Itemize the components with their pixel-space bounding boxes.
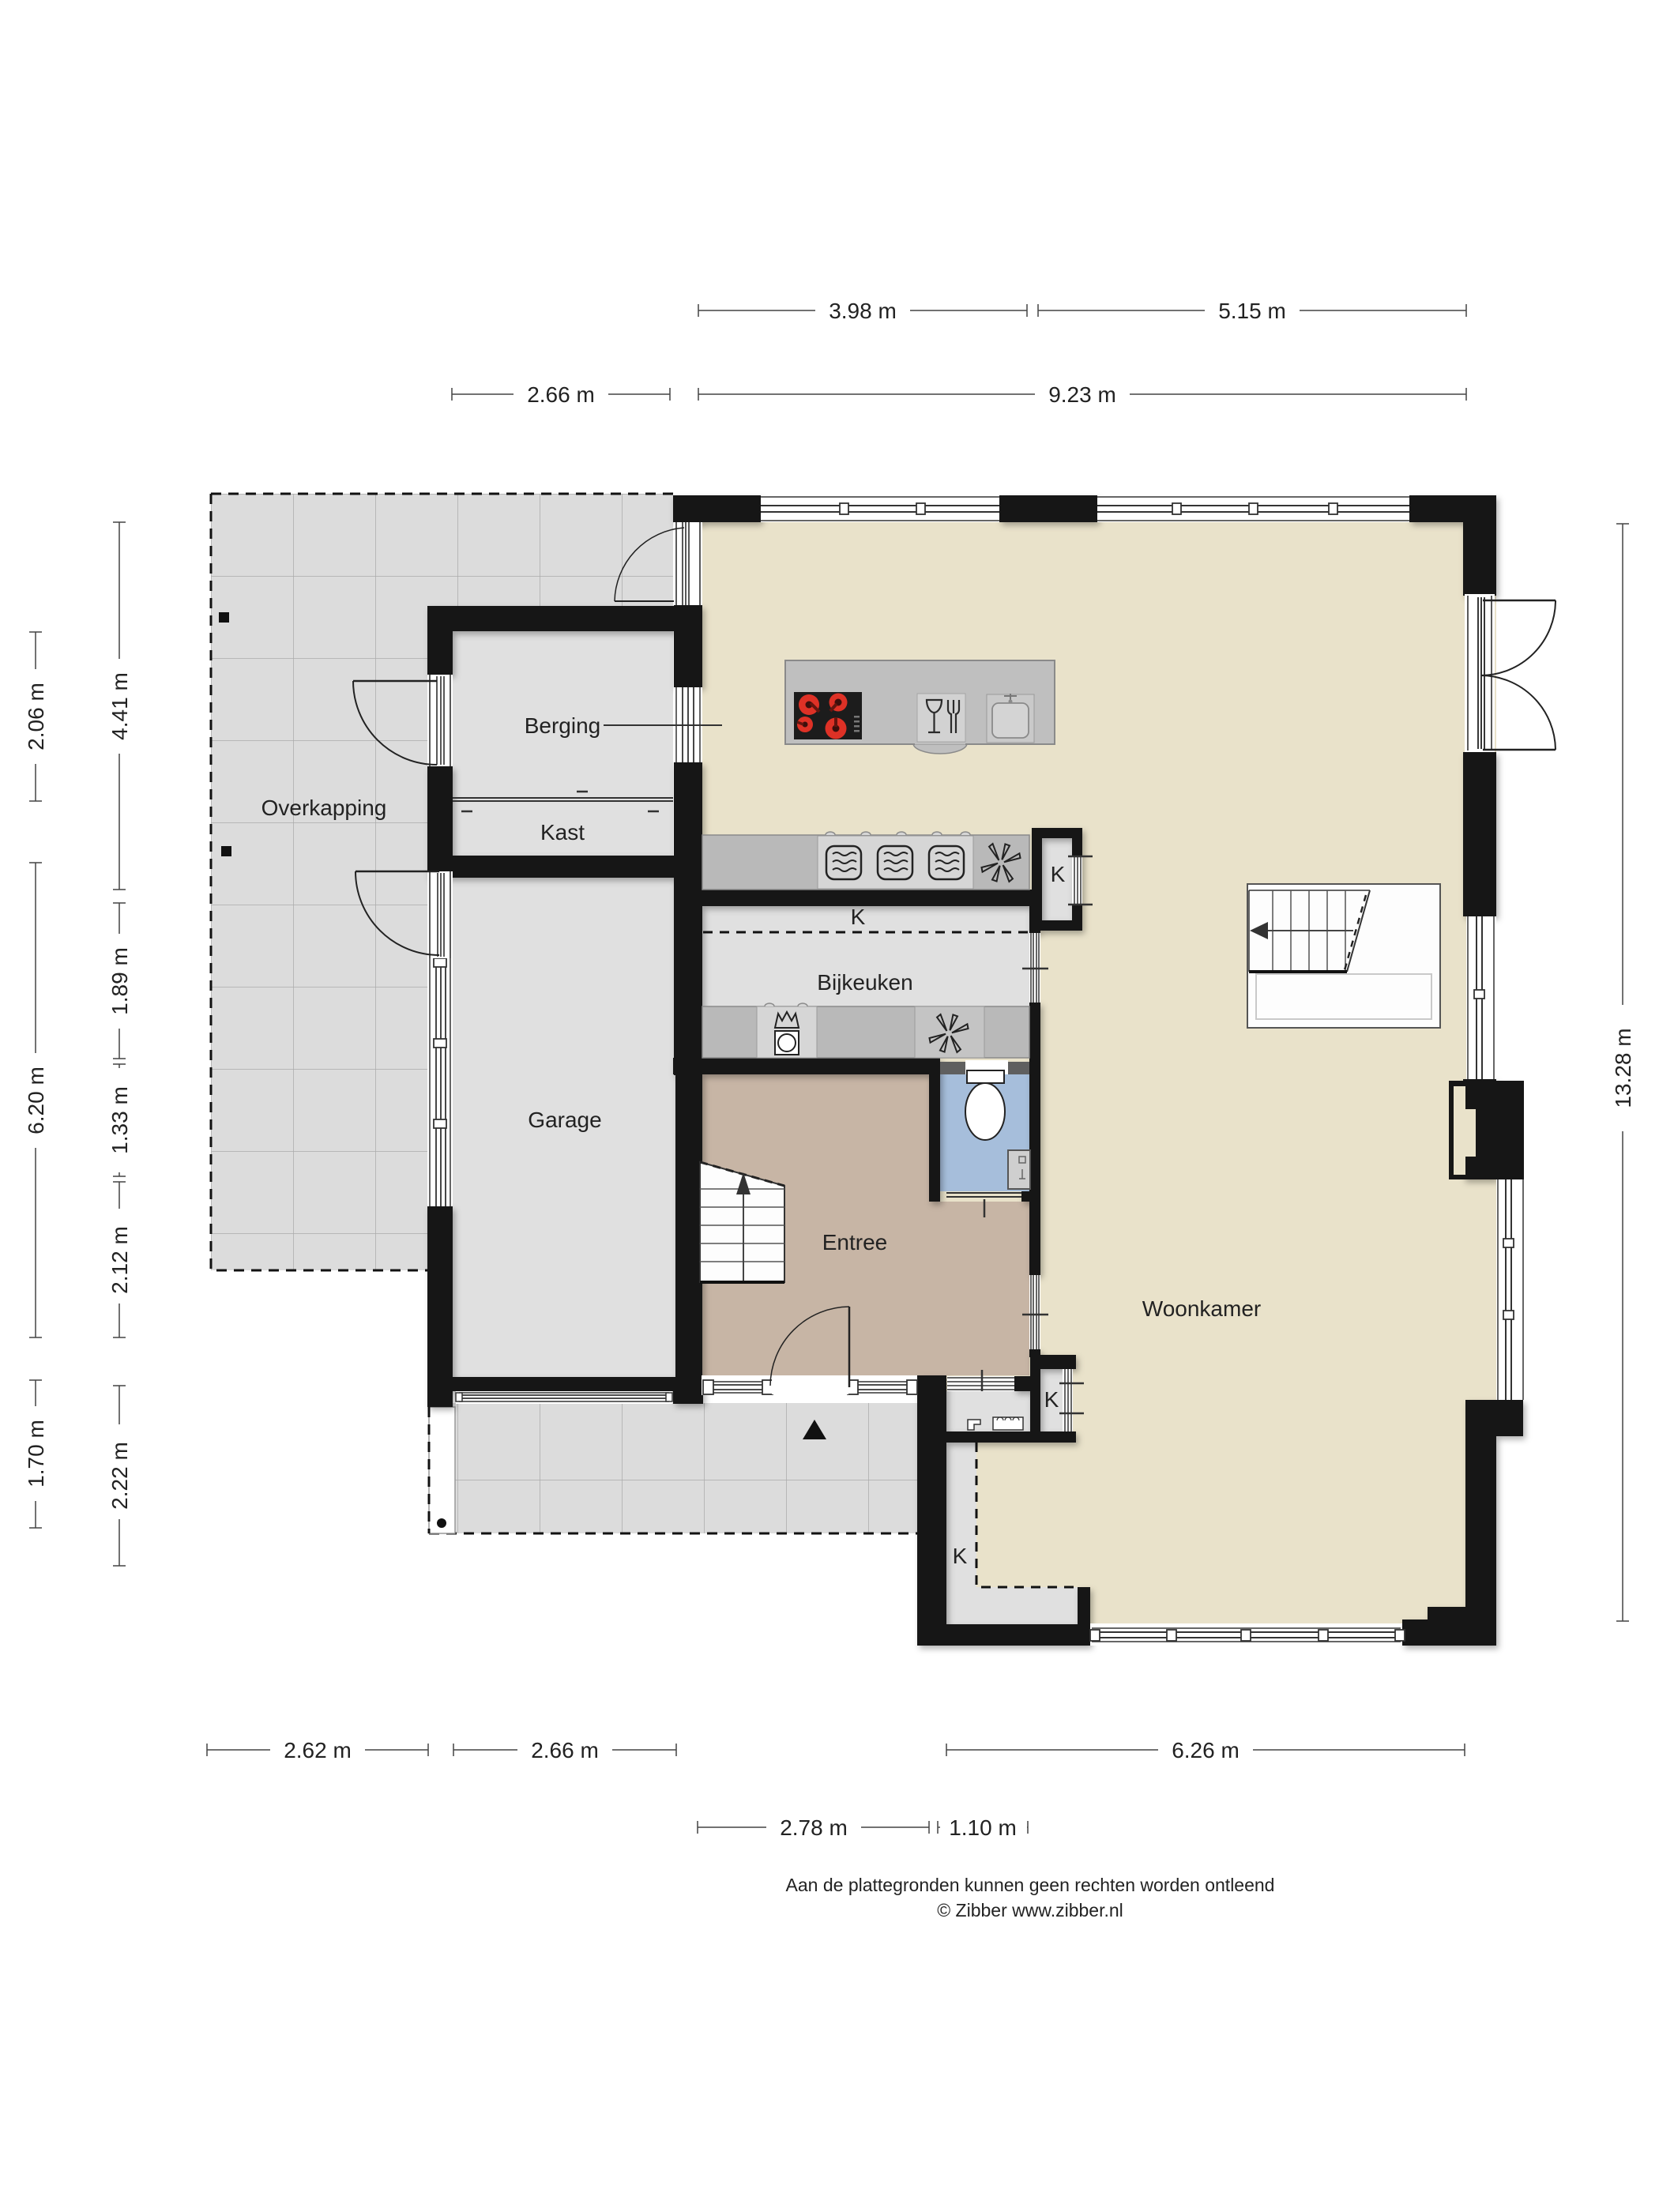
svg-text:9.23 m: 9.23 m bbox=[1048, 382, 1116, 407]
svg-text:Aan de plattegronden kunnen ge: Aan de plattegronden kunnen geen rechten… bbox=[786, 1875, 1275, 1895]
svg-text:Overkapping: Overkapping bbox=[261, 796, 387, 820]
svg-text:Garage: Garage bbox=[528, 1108, 601, 1132]
svg-text:Kast: Kast bbox=[540, 820, 585, 845]
svg-text:6.26 m: 6.26 m bbox=[1172, 1738, 1240, 1762]
svg-text:2.06 m: 2.06 m bbox=[24, 683, 48, 750]
svg-text:K: K bbox=[851, 905, 866, 929]
svg-text:1.70 m: 1.70 m bbox=[24, 1420, 48, 1488]
svg-text:3.98 m: 3.98 m bbox=[829, 299, 897, 323]
svg-text:Woonkamer: Woonkamer bbox=[1142, 1296, 1261, 1321]
svg-text:1.89 m: 1.89 m bbox=[107, 947, 132, 1015]
svg-text:2.66 m: 2.66 m bbox=[527, 382, 595, 407]
svg-text:4.41 m: 4.41 m bbox=[107, 672, 132, 740]
svg-text:1.10 m: 1.10 m bbox=[949, 1815, 1017, 1840]
svg-text:2.78 m: 2.78 m bbox=[780, 1815, 848, 1840]
svg-text:Berging: Berging bbox=[525, 713, 601, 738]
svg-text:1.33 m: 1.33 m bbox=[107, 1086, 132, 1154]
svg-text:2.12 m: 2.12 m bbox=[107, 1226, 132, 1294]
svg-text:K: K bbox=[953, 1544, 968, 1568]
svg-text:Bijkeuken: Bijkeuken bbox=[817, 970, 912, 995]
svg-text:Entree: Entree bbox=[822, 1230, 888, 1255]
svg-text:2.62 m: 2.62 m bbox=[284, 1738, 352, 1762]
svg-text:© Zibber www.zibber.nl: © Zibber www.zibber.nl bbox=[937, 1900, 1123, 1920]
svg-text:5.15 m: 5.15 m bbox=[1218, 299, 1286, 323]
svg-text:2.22 m: 2.22 m bbox=[107, 1442, 132, 1510]
svg-text:K: K bbox=[1051, 862, 1066, 886]
svg-text:6.20 m: 6.20 m bbox=[24, 1066, 48, 1134]
svg-text:2.66 m: 2.66 m bbox=[531, 1738, 599, 1762]
svg-text:13.28 m: 13.28 m bbox=[1611, 1028, 1635, 1108]
svg-text:K: K bbox=[1044, 1387, 1059, 1412]
